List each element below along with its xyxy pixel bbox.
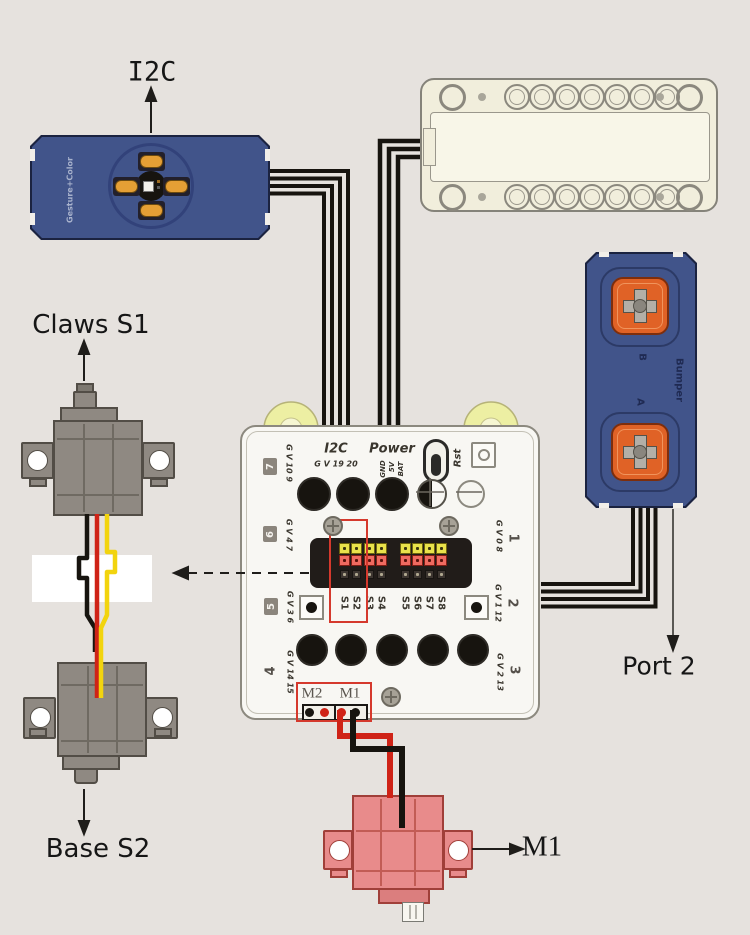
m1-label: M1: [522, 831, 562, 864]
wiring-diagram: Gesture+Color: [0, 0, 750, 935]
motor-wires: [340, 710, 402, 828]
annotation-arrows: [79, 88, 678, 854]
dial-marks: [416, 478, 482, 506]
screws: [324, 517, 458, 706]
wire-black: [79, 514, 95, 652]
servo-wires: [79, 514, 115, 698]
port-2-label: Port 2: [622, 652, 695, 681]
base-s2-label: Base S2: [46, 834, 151, 864]
wire-red: [340, 710, 390, 798]
wire-black: [353, 710, 402, 828]
annotations-layer: [0, 0, 750, 935]
wire-yellow: [101, 514, 115, 698]
claws-s1-label: Claws S1: [32, 310, 149, 340]
i2c-label: I2C: [128, 57, 177, 88]
